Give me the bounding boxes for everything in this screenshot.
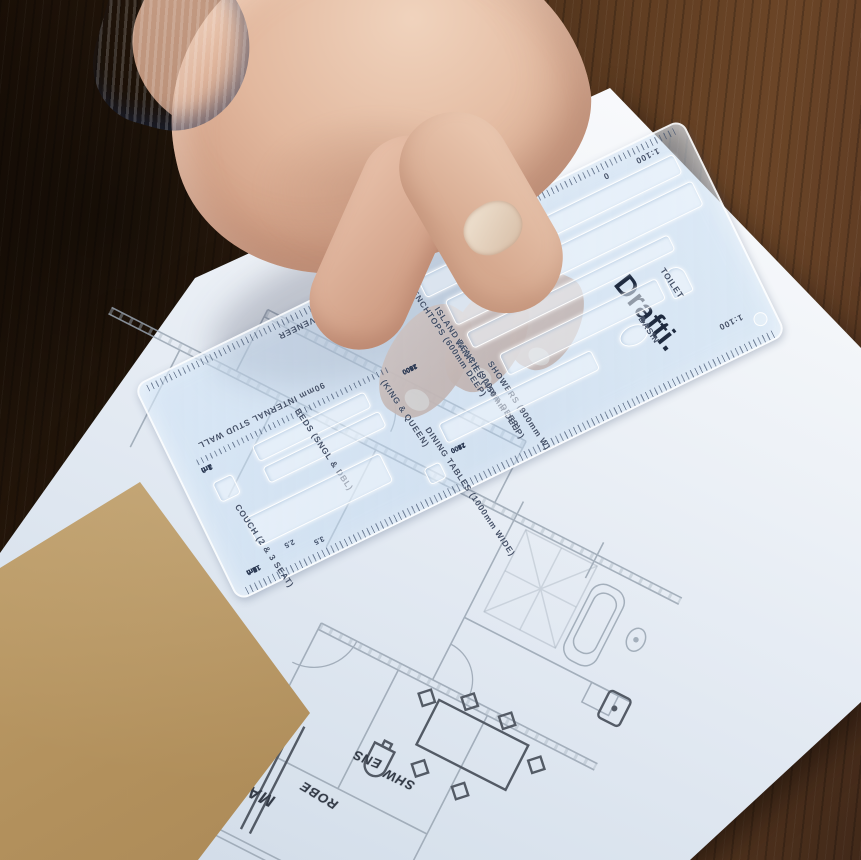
internal-wall-scale-ticks xyxy=(196,366,391,465)
beds-king-queen-label: (KING & QUEEN) xyxy=(379,378,432,449)
ruler-top-zero: 0 xyxy=(601,171,610,182)
hang-hole xyxy=(751,310,770,329)
size-mark: 3000 xyxy=(401,362,418,375)
couch-size-mark: 2.5 xyxy=(283,537,296,550)
photo-scene: MASTER ROBE ENS SHW 0 1:100 240mm EXTERN… xyxy=(0,0,861,860)
square-stencil-cutout xyxy=(212,474,241,503)
ruler-scale-label-bottom: 1:100 xyxy=(717,312,745,332)
couch-size-mark: 3.5 xyxy=(312,534,325,547)
plan-bathroom-fixtures xyxy=(468,530,667,716)
size-mark: 1200 xyxy=(449,441,466,454)
square-stencil-cutout xyxy=(423,461,447,485)
